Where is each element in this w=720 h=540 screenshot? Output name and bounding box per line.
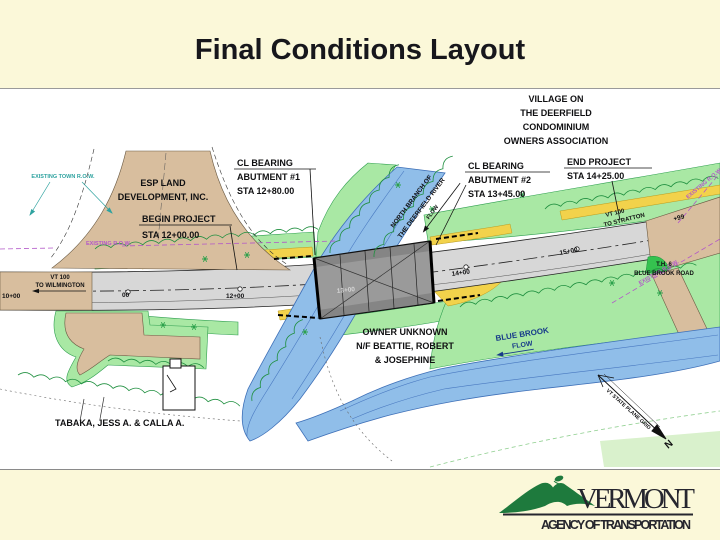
logo-state-name: VERMONT bbox=[577, 483, 695, 515]
callout-end-project: END PROJECT bbox=[567, 157, 632, 167]
owner-label-unknown: N/F BEATTIE, ROBERT bbox=[356, 341, 454, 351]
callout-abutment2: ABUTMENT #2 bbox=[468, 175, 531, 185]
town-row-leaders bbox=[30, 182, 112, 215]
owner-label-unknown: OWNER UNKNOWN bbox=[363, 327, 448, 337]
owner-label-village: VILLAGE ON bbox=[528, 94, 583, 104]
callout-abutment1: ABUTMENT #1 bbox=[237, 172, 300, 182]
owner-label-village: OWNERS ASSOCIATION bbox=[504, 136, 609, 146]
station-12: 12+00 bbox=[226, 293, 245, 300]
route-label-left: TO WILMINGTON bbox=[35, 283, 84, 289]
brook-road-label: T.H. 6 bbox=[656, 262, 672, 268]
owner-label-village: THE DEERFIELD bbox=[520, 108, 592, 118]
station-10: 10+00 bbox=[2, 293, 21, 300]
logo-agency-name: AGENCY OF TRANSPORTATION bbox=[541, 518, 691, 532]
existing-town-row-label: EXISTING TOWN R.O.W. bbox=[31, 174, 95, 180]
presentation-slide: Final Conditions Layout bbox=[0, 0, 720, 540]
page-title: Final Conditions Layout bbox=[0, 34, 720, 67]
existing-row-label-left: EXISTING R.O.W. bbox=[86, 241, 131, 247]
route-label-left: VT 100 bbox=[50, 275, 70, 281]
station-11: 00 bbox=[122, 292, 130, 299]
callout-begin-project: BEGIN PROJECT bbox=[142, 214, 216, 224]
owner-label-unknown: & JOSEPHINE bbox=[375, 355, 436, 365]
north-arrow-icon bbox=[598, 374, 666, 439]
callout-begin-project: STA 12+00.00 bbox=[142, 230, 199, 240]
callout-abutment2: STA 13+45.00 bbox=[468, 189, 525, 199]
vermont-aot-logo: VERMONT AGENCY OF TRANSPORTATION bbox=[497, 472, 715, 534]
callout-end-project: STA 14+25.00 bbox=[567, 171, 624, 181]
building-outline bbox=[163, 359, 195, 410]
owner-label-village: CONDOMINIUM bbox=[523, 122, 590, 132]
site-plan-map: VILLAGE ON THE DEERFIELD CONDOMINIUM OWN… bbox=[0, 88, 720, 470]
callout-abutment1: CL BEARING bbox=[237, 158, 293, 168]
owner-label-esp: DEVELOPMENT, INC. bbox=[118, 192, 209, 202]
brook-road-label: BLUE BROOK ROAD bbox=[634, 271, 694, 277]
owner-label-tabaka: TABAKA, JESS A. & CALLA A. bbox=[55, 418, 184, 428]
callout-abutment2: CL BEARING bbox=[468, 161, 524, 171]
grid-label: VT STATE PLANE GRID bbox=[605, 388, 652, 431]
owner-label-esp: ESP LAND bbox=[140, 178, 186, 188]
callout-abutment1: STA 12+80.00 bbox=[237, 186, 294, 196]
